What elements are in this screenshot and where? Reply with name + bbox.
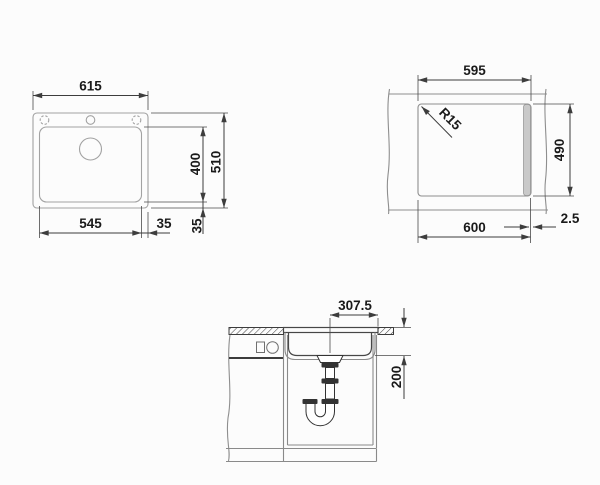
dim-label-615: 615 [79,79,102,94]
rail-fixing-circle [267,342,279,354]
trap-nut [322,399,339,404]
trap-u-bend-inner [315,404,326,417]
faucet-hole-center-icon [86,116,95,125]
break-line-right [545,89,547,214]
dim-edge-offset: 2.5 [504,211,580,227]
cutout-view: R15 595 490 600 2.5 [387,63,580,243]
dim-right-margin: 35 [142,216,172,233]
dim-label-200: 200 [389,366,404,389]
trap-nut [322,363,339,368]
countertop-section-right [378,328,394,335]
trap-pipe [326,384,335,400]
technical-drawing: 615 510 400 545 35 [0,0,600,485]
break-line-left [387,89,389,214]
section-view: 307.5 200 [226,298,411,462]
plan-view: 615 510 400 545 35 [33,79,228,239]
trap-pipe [326,368,335,379]
drain-trap [303,356,344,426]
break-line-cabinet [227,335,230,461]
dim-label-35-right: 35 [156,216,172,231]
cutout-outline [418,104,531,196]
dim-label-490: 490 [552,139,567,162]
sink-rim-section [284,328,379,333]
dim-label-307-5: 307.5 [338,298,372,313]
dim-bowl-width: 545 [40,206,149,238]
rail-fixing-square [257,342,265,353]
dim-label-2-5: 2.5 [561,211,580,226]
dim-label-545: 545 [79,216,102,231]
trap-nut [303,399,318,404]
dim-bottom-margin: 35 [190,202,205,234]
faucet-hole-right-icon [132,116,141,125]
dim-label-600: 600 [463,220,486,235]
cutout-edge-shade [524,105,531,196]
dim-corner-radius: R15 [422,105,465,138]
countertop-section-left [229,328,284,335]
dim-cutout-width: 595 [418,63,531,101]
dim-label-510: 510 [209,151,224,174]
dim-bowl-inner-depth: 200 [375,308,411,399]
dim-outer-width: 600 [418,198,531,243]
dim-label-35-bottom: 35 [190,218,205,234]
technical-drawing-page: 615 510 400 545 35 [0,0,600,485]
faucet-hole-left-icon [40,116,49,125]
drain-flange [317,356,343,363]
dim-overall-width: 615 [33,79,148,111]
dim-drain-offset: 307.5 [330,298,378,353]
dim-bowl-depth: 400 [144,127,207,202]
dim-label-595: 595 [463,63,486,78]
dim-label-400: 400 [188,153,203,176]
dim-cutout-depth: 490 [533,104,574,196]
trap-nut [322,379,339,384]
dim-label-r15: R15 [436,105,464,133]
drain-circle [80,138,102,160]
